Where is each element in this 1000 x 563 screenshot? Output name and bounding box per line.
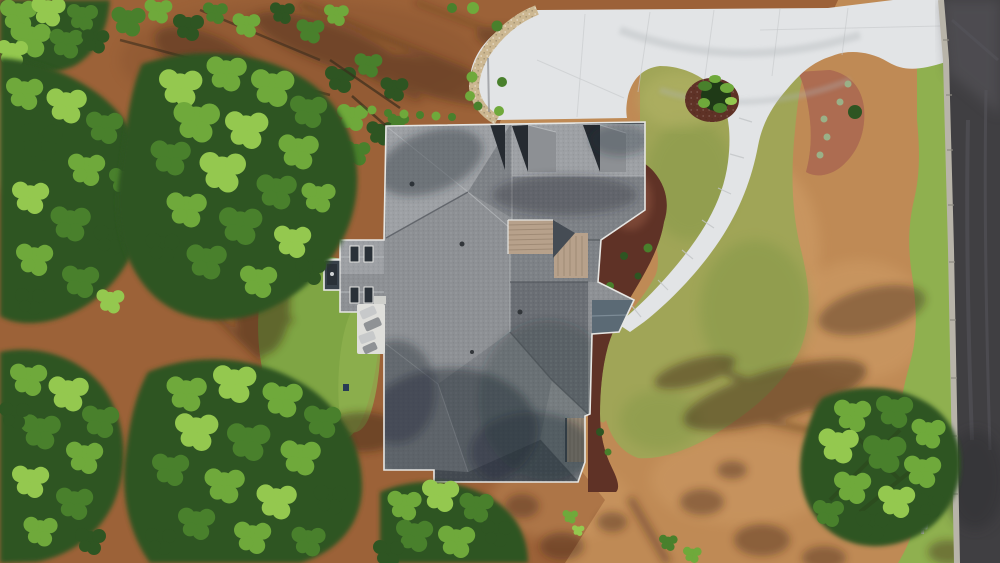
bed-edging: [488, 58, 489, 112]
aerial-photo-canvas: [0, 0, 1000, 563]
birdbath: [343, 384, 349, 391]
patio: [357, 296, 386, 355]
aerial-photo: [0, 0, 1000, 563]
pine-canopy-left: [0, 0, 362, 563]
